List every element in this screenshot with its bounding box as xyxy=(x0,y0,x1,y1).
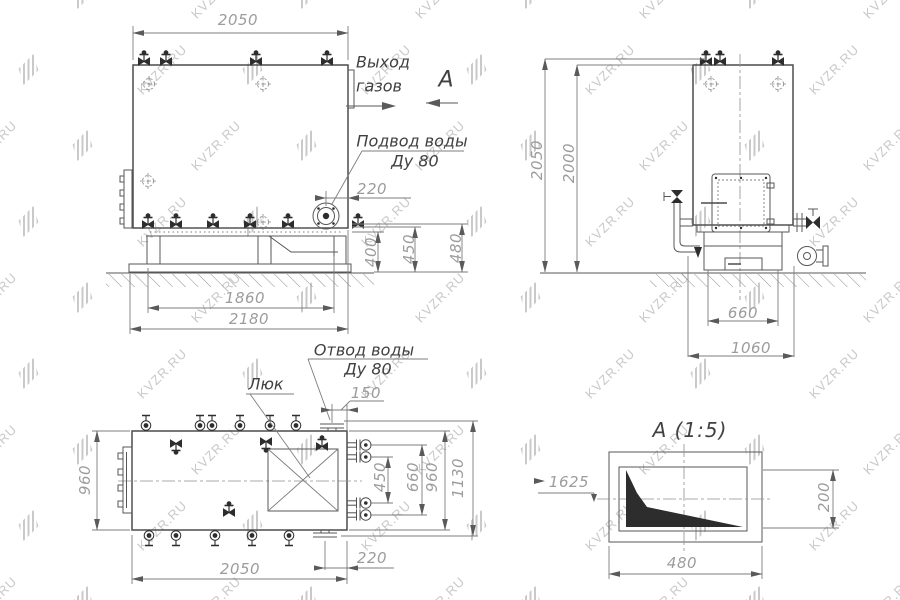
valve-icon xyxy=(317,436,328,450)
crosshair-mark-icon xyxy=(255,76,271,92)
valve-icon xyxy=(245,214,256,228)
nozzle-icon xyxy=(347,498,371,509)
valve-icon xyxy=(235,416,245,431)
valve-icon xyxy=(701,51,712,65)
valve-icon xyxy=(322,51,333,65)
dim-nozzles-450: 450 xyxy=(371,462,389,492)
dim-side-height-2050: 2050 xyxy=(528,140,546,180)
dim-height-400: 400 xyxy=(362,237,380,267)
boiler-body-plan xyxy=(132,431,347,530)
valve-icon xyxy=(224,502,235,516)
dim-detail-200: 200 xyxy=(815,482,833,512)
dim-side-height-2000: 2000 xyxy=(560,143,578,183)
dim-side-base-660: 660 xyxy=(728,304,758,322)
section-a-label: А xyxy=(438,68,453,93)
valve-icon xyxy=(210,531,220,546)
dim-overall-1130: 1130 xyxy=(449,458,467,498)
dim-frame-2180: 2180 xyxy=(229,310,269,328)
valve-icon xyxy=(143,214,154,228)
crosshair-mark-icon xyxy=(770,76,786,92)
section-a-arrow-icon xyxy=(426,99,458,107)
water-inlet-flange xyxy=(313,203,339,229)
valve-icon xyxy=(283,214,294,228)
nozzle-icon xyxy=(347,510,371,521)
valve-icon xyxy=(353,214,364,228)
hatch-opening xyxy=(268,449,338,511)
dim-frame-1860: 1860 xyxy=(225,289,265,307)
crosshair-mark-icon xyxy=(141,76,157,92)
ground-line xyxy=(540,273,866,287)
bottom-flange xyxy=(313,530,337,537)
support-frame xyxy=(129,228,351,272)
valve-icon xyxy=(195,416,205,431)
valve-icon xyxy=(291,416,301,431)
water-outlet-label-line2: Ду 80 xyxy=(344,360,391,379)
hatch-label: Люк xyxy=(248,375,283,394)
water-outlet-label-line1: Отвод воды xyxy=(314,341,414,360)
valve-icon xyxy=(141,416,151,431)
water-inlet-label-line2: Ду 80 xyxy=(391,152,438,171)
dim-front-width: 2050 xyxy=(218,11,258,29)
gas-outlet-label-line2: газов xyxy=(356,77,402,96)
gas-outlet-stub xyxy=(348,70,354,108)
boiler-body-front xyxy=(133,65,348,228)
dim-length-2050: 2050 xyxy=(220,560,260,578)
valve-icon xyxy=(171,440,182,454)
valve-icon xyxy=(208,214,219,228)
crosshair-mark-icon xyxy=(140,173,156,189)
dim-body-960-left: 960 xyxy=(76,465,94,495)
side-view xyxy=(540,51,866,357)
front-view xyxy=(106,26,468,334)
furnace-door xyxy=(701,174,774,232)
valve-icon xyxy=(251,51,262,65)
valve-icon xyxy=(207,416,217,431)
valve-icon xyxy=(284,531,294,546)
dim-outlet-220: 220 xyxy=(357,549,387,567)
valve-icon xyxy=(171,214,182,228)
dim-outlet-150: 150 xyxy=(351,384,381,402)
drawing-canvas: KVZR.RUKVZR.RUKVZR.RUKVZR.RUKVZR.RUKVZR.… xyxy=(0,0,900,600)
front-left-hatch-door xyxy=(120,170,132,228)
valve-icon xyxy=(171,531,181,546)
left-drain-pipe xyxy=(664,190,702,258)
right-pipe-and-burner xyxy=(793,209,828,266)
dim-height-480: 480 xyxy=(447,233,465,263)
valve-icon xyxy=(161,51,172,65)
furnace-base xyxy=(697,225,789,270)
dim-nozzles-660: 660 xyxy=(404,462,422,492)
water-inlet-label-line1: Подвод воды xyxy=(356,132,467,151)
dim-height-450: 450 xyxy=(400,234,418,264)
dim-detail-480: 480 xyxy=(667,554,697,572)
valve-icon xyxy=(247,531,257,546)
valve-icon xyxy=(773,51,784,65)
gas-outlet-label-line1: Выход xyxy=(356,53,410,72)
nozzle-icon xyxy=(347,452,371,463)
detail-a-title: А (1:5) xyxy=(653,418,728,442)
valve-icon xyxy=(139,51,150,65)
water-outlet-flange xyxy=(320,424,344,431)
burner xyxy=(798,247,817,266)
valve-icon xyxy=(715,51,726,65)
dim-width-960-right: 960 xyxy=(423,462,441,492)
plan-left-hatch-door xyxy=(118,447,132,513)
crosshair-mark-icon xyxy=(703,76,719,92)
dim-inlet-offset: 220 xyxy=(357,180,387,198)
valve-icon xyxy=(144,531,154,546)
nozzle-icon xyxy=(347,440,371,451)
damper-wedge xyxy=(626,470,743,527)
dim-detail-1625: 1625 xyxy=(549,473,589,491)
dim-side-base-1060: 1060 xyxy=(731,339,771,357)
